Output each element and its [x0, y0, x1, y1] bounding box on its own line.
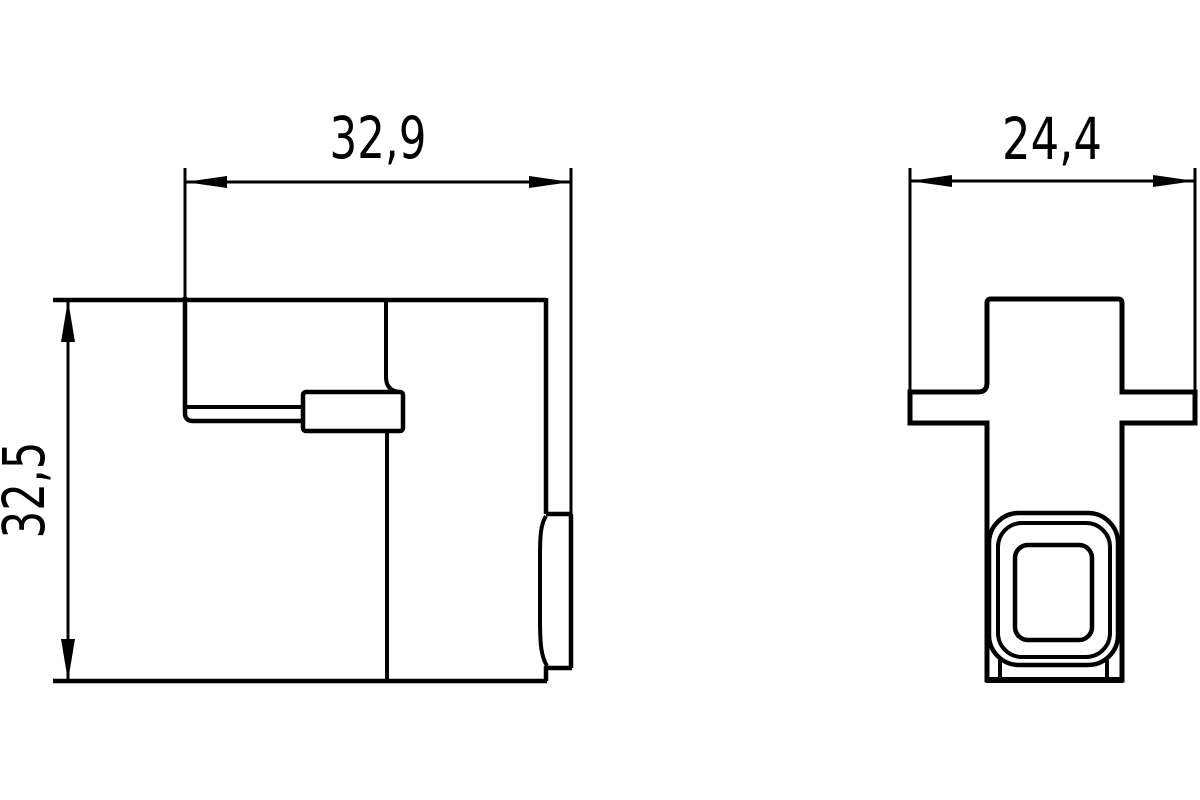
side-view [53, 297, 572, 681]
front-view-outline [910, 299, 1195, 680]
arrowhead-up-icon [61, 300, 75, 342]
arrowhead-down-icon [61, 639, 75, 681]
arrowhead-left-icon [185, 176, 227, 188]
latch-arm-profile [540, 516, 547, 666]
internal-step-edge [386, 298, 400, 392]
dimension-side-height: 32,5 [0, 300, 75, 681]
dimension-value-side-width: 32,9 [330, 104, 427, 172]
arrowhead-right-icon [529, 176, 571, 188]
arrowhead-right-icon [1153, 175, 1195, 187]
front-view [910, 299, 1195, 680]
technical-drawing: 32,9 32,5 24,4 [0, 0, 1200, 800]
dimension-front-width: 24,4 [910, 105, 1195, 392]
dimension-value-side-height: 32,5 [0, 442, 58, 539]
cavity-opening [1015, 545, 1092, 640]
dimension-side-width: 32,9 [185, 104, 571, 515]
drawing-canvas: 32,9 32,5 24,4 [0, 0, 1200, 800]
latch-block [303, 392, 403, 431]
slot-left-edge-and-bar-bottom [185, 297, 303, 421]
arrowhead-left-icon [910, 175, 952, 187]
dimension-value-front-width: 24,4 [1002, 105, 1102, 173]
